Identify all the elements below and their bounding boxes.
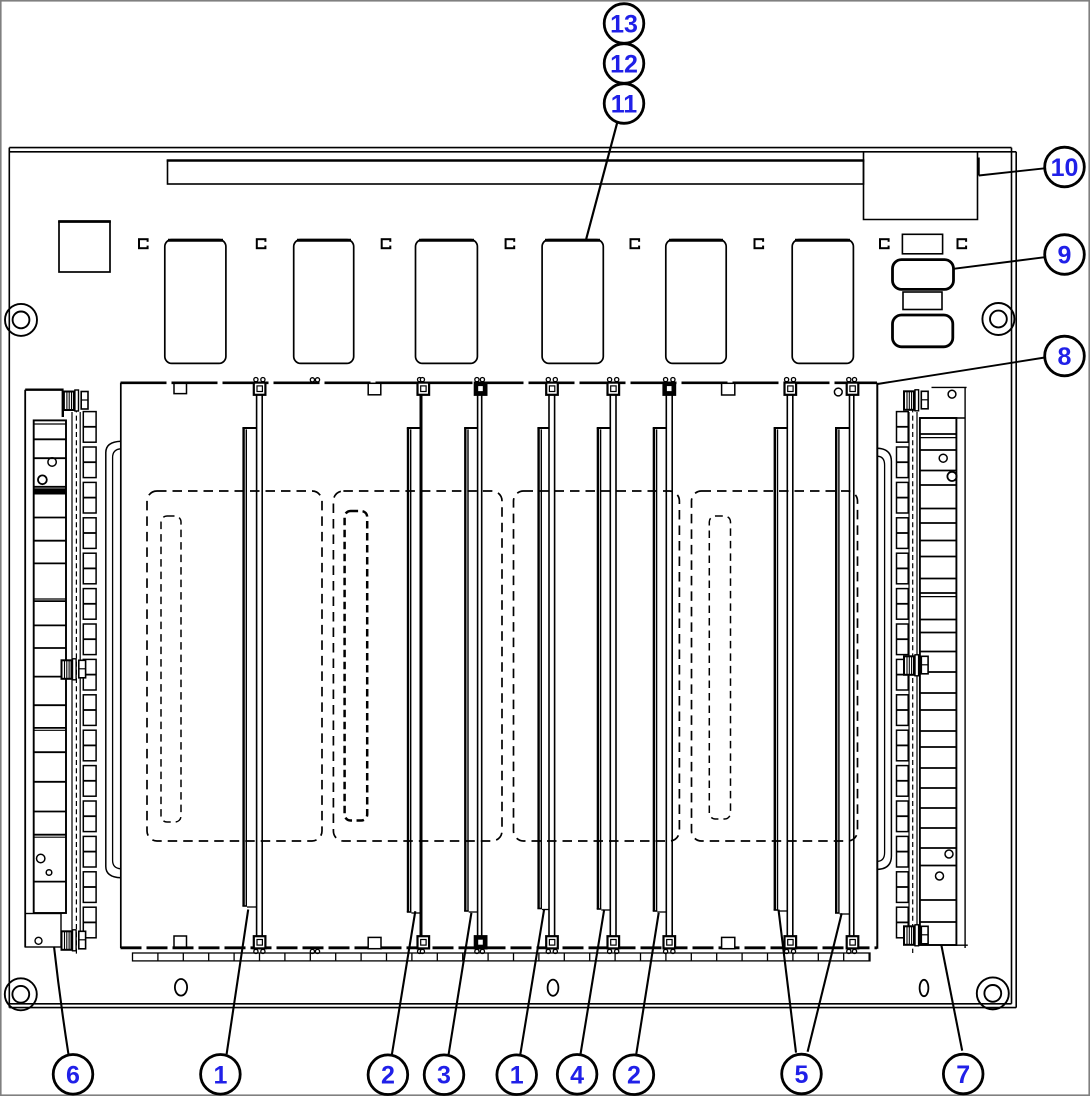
svg-text:1: 1	[213, 1061, 227, 1089]
svg-text:4: 4	[570, 1061, 584, 1089]
svg-text:7: 7	[956, 1061, 970, 1089]
svg-text:8: 8	[1058, 343, 1072, 371]
svg-text:6: 6	[66, 1061, 80, 1089]
svg-text:9: 9	[1058, 242, 1072, 270]
svg-text:10: 10	[1051, 154, 1079, 182]
svg-text:3: 3	[437, 1062, 451, 1090]
svg-text:2: 2	[627, 1062, 641, 1090]
svg-text:2: 2	[381, 1062, 395, 1090]
svg-text:5: 5	[795, 1061, 809, 1089]
svg-text:11: 11	[611, 91, 638, 119]
svg-text:12: 12	[610, 51, 638, 79]
svg-text:13: 13	[610, 11, 638, 39]
svg-text:1: 1	[510, 1062, 524, 1090]
